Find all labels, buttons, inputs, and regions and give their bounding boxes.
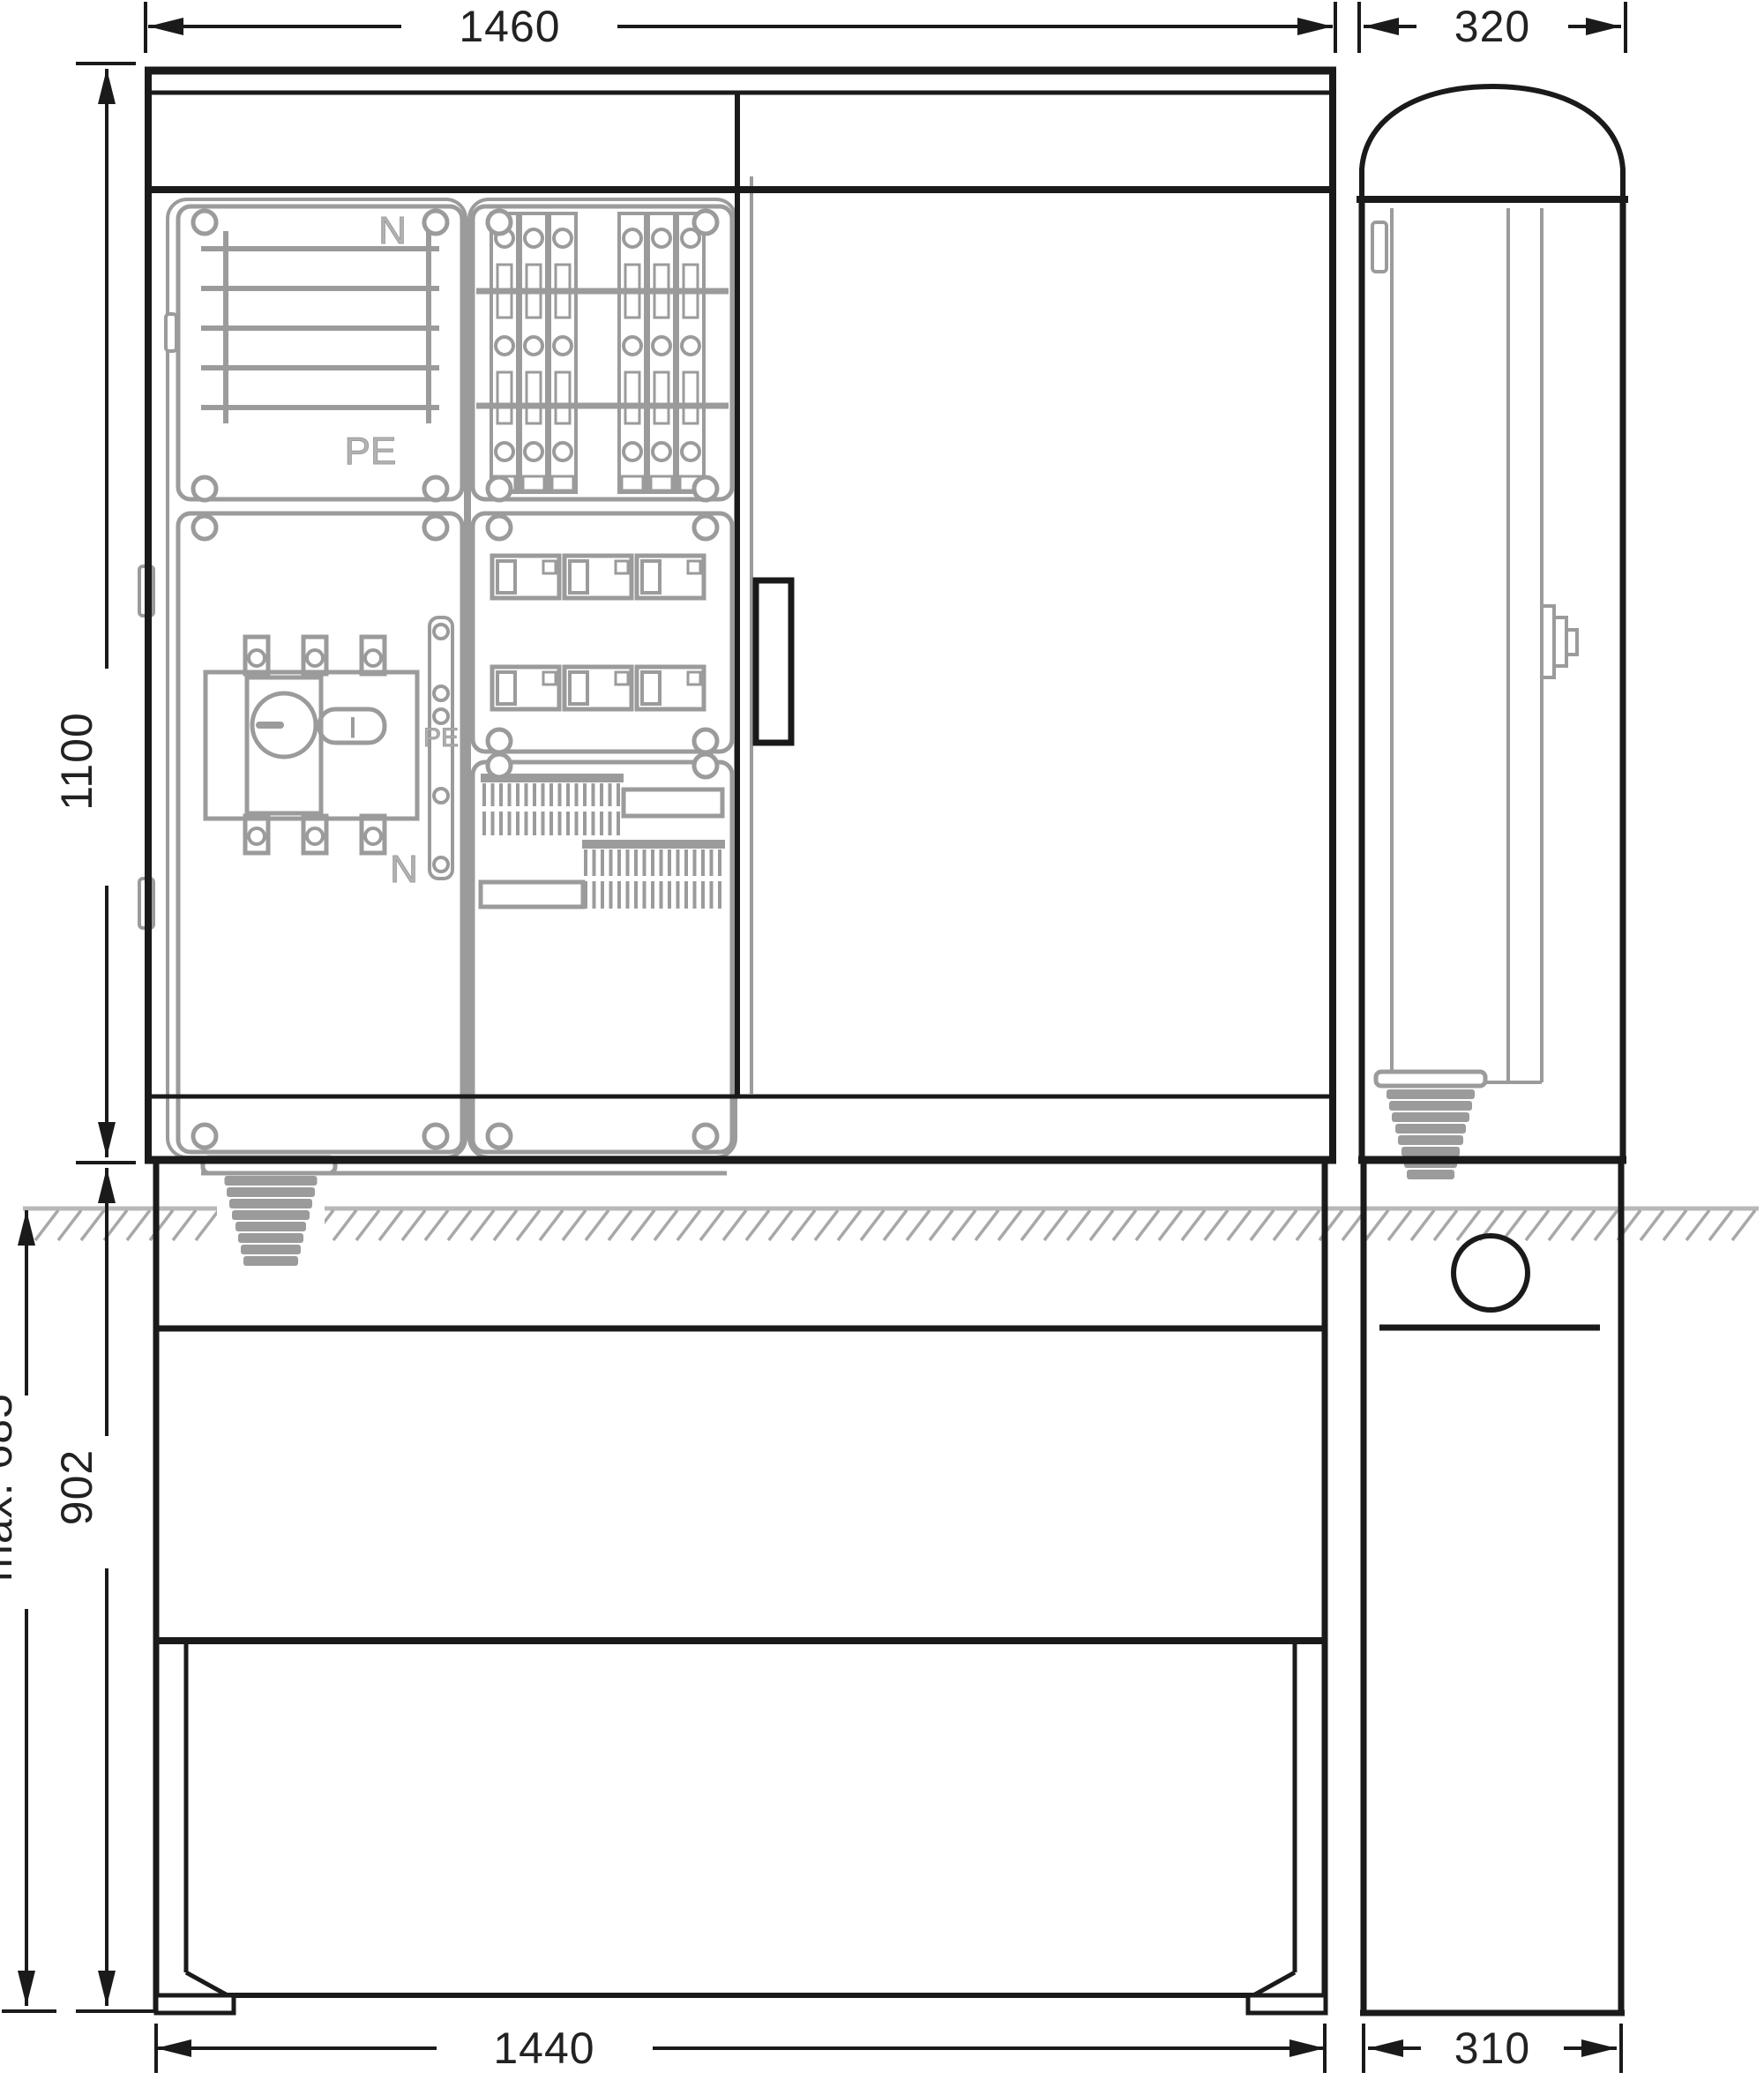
comb-busbar-lower	[481, 840, 725, 909]
dimension-front-width: 1460	[146, 2, 1335, 53]
nh-fuse-strips	[491, 213, 704, 492]
comb-busbar-upper	[481, 774, 722, 835]
dim-label-310: 310	[1454, 2024, 1530, 2073]
fuse-switch-rows	[492, 556, 704, 709]
dim-label-1440: 1440	[493, 2024, 594, 2073]
technical-drawing-page: N PE PE N I	[0, 0, 1764, 2080]
side-cable-gland	[1376, 1072, 1485, 1184]
switch-position-label: I	[349, 712, 357, 744]
side-door-handle-profile	[1542, 606, 1577, 677]
front-enclosure-outline	[145, 71, 1336, 1160]
dimensions: 1460 320 1100 902	[0, 2, 1626, 2073]
cable-entry-hole	[1454, 1236, 1528, 1310]
dimension-arrowheads	[18, 18, 1621, 2057]
cabinet-dimensional-drawing: N PE PE N I	[0, 0, 1764, 2080]
npe-busbars	[201, 231, 439, 423]
base-foot-right	[1248, 1995, 1326, 2013]
pe-strip-label: PE	[423, 723, 459, 752]
dimension-front-height: 1100	[52, 64, 136, 1157]
dim-label-320: 320	[1454, 2, 1530, 51]
dimension-base-height: 902	[52, 1168, 155, 2011]
side-view	[1357, 86, 1628, 1184]
front-base	[156, 1160, 1326, 2013]
busbar-pe-label: PE	[345, 430, 397, 473]
side-enclosure-outline	[1357, 86, 1628, 1160]
front-view: N PE PE N I	[139, 71, 1336, 1267]
dimension-side-width: 320	[1359, 2, 1626, 53]
base-foot-left	[156, 1995, 234, 2013]
breaker-box	[473, 513, 732, 752]
main-switch	[206, 637, 417, 853]
side-base	[1360, 1160, 1625, 2013]
hinge-block	[1372, 222, 1387, 272]
dim-label-1460: 1460	[459, 2, 560, 51]
roof-dome	[1362, 86, 1623, 199]
front-cable-gland	[203, 1157, 335, 1267]
dim-label-1100: 1100	[52, 712, 101, 811]
front-internal-equipment: N PE PE N I	[139, 176, 751, 1173]
dim-label-902: 902	[52, 1449, 101, 1525]
dimension-below-ground: max. 685	[0, 1210, 56, 2011]
dimension-base-front-width: 1440	[156, 2024, 1325, 2073]
busbar-n-label: N	[378, 209, 407, 252]
side-internal	[1372, 208, 1577, 1082]
door-handle	[756, 580, 791, 743]
n-strip-label: N	[390, 848, 418, 891]
dim-label-max685: max. 685	[0, 1393, 21, 1582]
